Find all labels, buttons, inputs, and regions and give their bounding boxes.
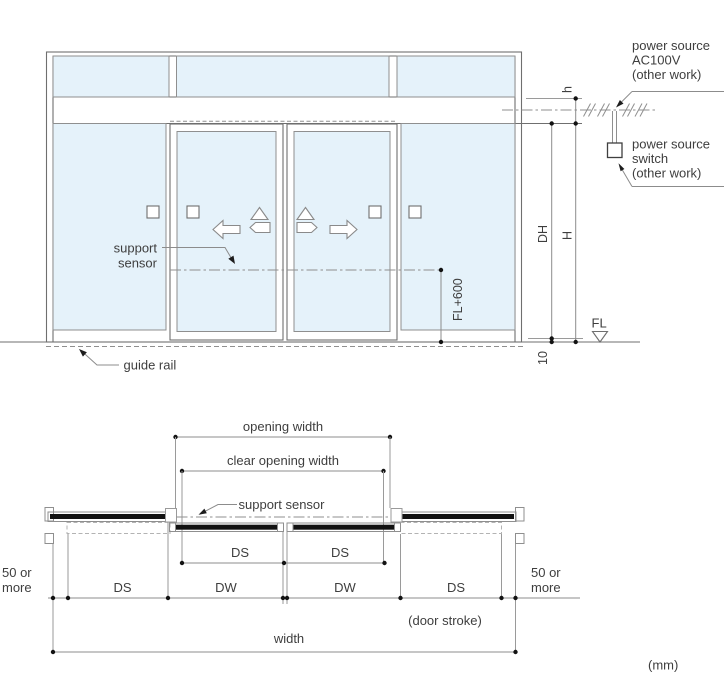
leader-arrowhead	[79, 349, 87, 357]
sensor-box-icon	[187, 206, 199, 218]
clearance-right-label-line2: more	[531, 580, 561, 595]
ds-lower-left-label: DS	[113, 580, 131, 595]
jamb-right	[516, 534, 525, 544]
leader-line	[81, 351, 119, 366]
meeting-stile-left	[166, 509, 177, 523]
jamb-right	[516, 508, 525, 522]
ds-upper-right-label: DS	[331, 545, 349, 560]
leader-arrowhead	[619, 163, 625, 171]
opening-width-label: opening width	[243, 419, 323, 434]
elevation-dimensions: h DH H 10 FL	[526, 86, 608, 365]
door-right-bar	[294, 525, 395, 530]
sensor-box-icon	[147, 206, 159, 218]
dim-label-dh: DH	[536, 225, 550, 243]
meeting-stile-right	[391, 509, 402, 523]
dim-label-H: H	[561, 231, 575, 240]
support-sensor-plan-callout: support sensor	[199, 497, 326, 515]
jamb-left	[45, 534, 54, 544]
door-left-bar	[176, 525, 277, 530]
ds-upper-left-label: DS	[231, 545, 249, 560]
clearance-left-label-line2: more	[2, 580, 32, 595]
elevation-view: support sensor FL+600 guide rail	[0, 38, 724, 373]
plan-sliding-doors	[67, 523, 502, 534]
dw-left-label: DW	[215, 580, 237, 595]
fl-label: FL	[592, 316, 607, 331]
transom-pane-left	[53, 56, 169, 97]
power-switch-label-line3: (other work)	[632, 166, 701, 181]
door-stroke-note: (door stroke)	[408, 613, 482, 628]
plan-view: opening width clear opening width suppor…	[2, 419, 580, 654]
clearance-right-label-line1: 50 or	[531, 565, 561, 580]
sensor-box-icon	[369, 206, 381, 218]
plan-jambs	[45, 508, 524, 544]
power-source-label-line3: (other work)	[632, 67, 701, 82]
automatic-door-installation-diagram: support sensor FL+600 guide rail	[0, 0, 726, 700]
leader-arrowhead	[199, 509, 207, 515]
support-sensor-label-line1: support	[114, 241, 158, 256]
technical-drawing: support sensor FL+600 guide rail	[0, 0, 726, 700]
fixed-glass-left	[53, 124, 166, 331]
fl600-label: FL+600	[451, 278, 465, 321]
guide-rail-callout: guide rail	[79, 349, 176, 373]
power-switch-box-icon	[608, 143, 623, 158]
power-source-callout: power source AC100V (other work)	[616, 38, 724, 108]
power-switch-callout: power source switch (other work)	[619, 137, 725, 187]
support-sensor-label-line2: sensor	[118, 256, 158, 271]
transom-pane-center	[177, 56, 390, 97]
width-dimension: width	[51, 631, 518, 654]
main-dimension-line: DS DW DW DS 50 or more 50 or more	[2, 565, 580, 600]
clear-opening-width-label: clear opening width	[227, 453, 339, 468]
fixed-panels	[53, 124, 515, 331]
power-switch-label-line2: switch	[632, 151, 668, 166]
unit-note: (mm)	[648, 658, 678, 673]
power-switch-label-line1: power source	[632, 137, 710, 152]
sensor-box-icon	[409, 206, 421, 218]
dim-label-10: 10	[536, 351, 550, 365]
door-stroke-zone-right	[401, 523, 502, 534]
power-source-label-line1: power source	[632, 38, 710, 53]
fl-level-marker-icon	[593, 332, 608, 343]
sliding-door-panels	[170, 121, 397, 340]
width-label: width	[273, 631, 304, 646]
fixed-panel-right-bar	[398, 514, 514, 519]
transom-windows	[53, 56, 515, 97]
dim-label-h: h	[561, 86, 575, 93]
support-sensor-plan-label: support sensor	[239, 497, 326, 512]
door-stroke-zone-left	[67, 523, 170, 534]
clearance-left-label-line1: 50 or	[2, 565, 32, 580]
dw-right-label: DW	[334, 580, 356, 595]
power-source-label-line2: AC100V	[632, 53, 681, 68]
fixed-panel-left-bar	[50, 514, 170, 519]
transom-pane-right	[397, 56, 515, 97]
guide-rail-label: guide rail	[124, 358, 177, 373]
ds-lower-right-label: DS	[447, 580, 465, 595]
